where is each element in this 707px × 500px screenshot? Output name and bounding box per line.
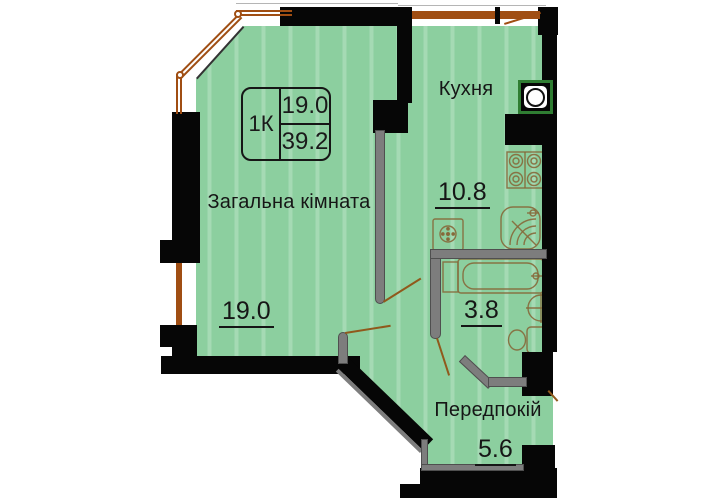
living-area-value: 19.0 [281,89,329,125]
apartment-info-box: 1К 19.0 39.2 [241,87,331,161]
window-kitchen-divider [495,7,500,24]
kitchen-label: Кухня [425,78,507,101]
bathroom-shelf [443,262,458,292]
wall-hall-bottom-ext [400,484,422,498]
partition-living-hallway-stub [338,332,348,364]
fixtures-layer [0,0,707,500]
hallway-area: 5.6 [475,437,516,466]
partition-bathroom-left [430,250,441,339]
ventilation-shaft-icon [518,80,553,114]
wall-right-bottom-block [522,445,555,490]
wall-left-pillar-upper [172,112,200,263]
apartment-info-values: 19.0 39.2 [281,89,329,159]
washing-machine-icon [433,219,463,250]
wall-top [280,7,412,26]
partition-bathroom-top [430,249,547,259]
glazing-joint-2 [234,10,242,18]
wall-right [542,25,557,352]
kitchen-area: 10.8 [435,180,490,209]
living-room-area: 19.0 [219,299,274,328]
balcony-glazing-left [176,74,182,114]
total-area-value: 39.2 [281,125,329,159]
apartment-type-label: 1К [243,89,281,159]
partition-living-kitchen [375,130,385,304]
stove-icon [507,152,543,188]
glazing-joint-1 [176,71,184,79]
wall-kitchen-left [397,7,412,103]
kitchen-sink-icon [501,207,540,249]
wall-bottom-left [161,356,360,374]
balcony-glazing-top [236,10,292,16]
wall-vent-block [505,114,543,145]
partition-bathroom-bottom [488,377,527,387]
window-living-left [176,263,182,325]
wall-left-pillar-upper-foot [160,240,174,263]
ventilation-shaft-duct [526,88,545,107]
floor-plan: Загальна кімната Кухня Передпокій 19.0 1… [0,0,707,500]
wall-kitchen-left-foot [373,100,408,133]
toilet-icon [509,327,547,353]
bathroom-area: 3.8 [461,298,502,327]
living-room-label: Загальна кімната [198,191,380,214]
hallway-label: Передпокій [426,399,550,422]
bathtub-icon [458,259,543,293]
wall-left-pillar-lower-head [160,325,174,347]
